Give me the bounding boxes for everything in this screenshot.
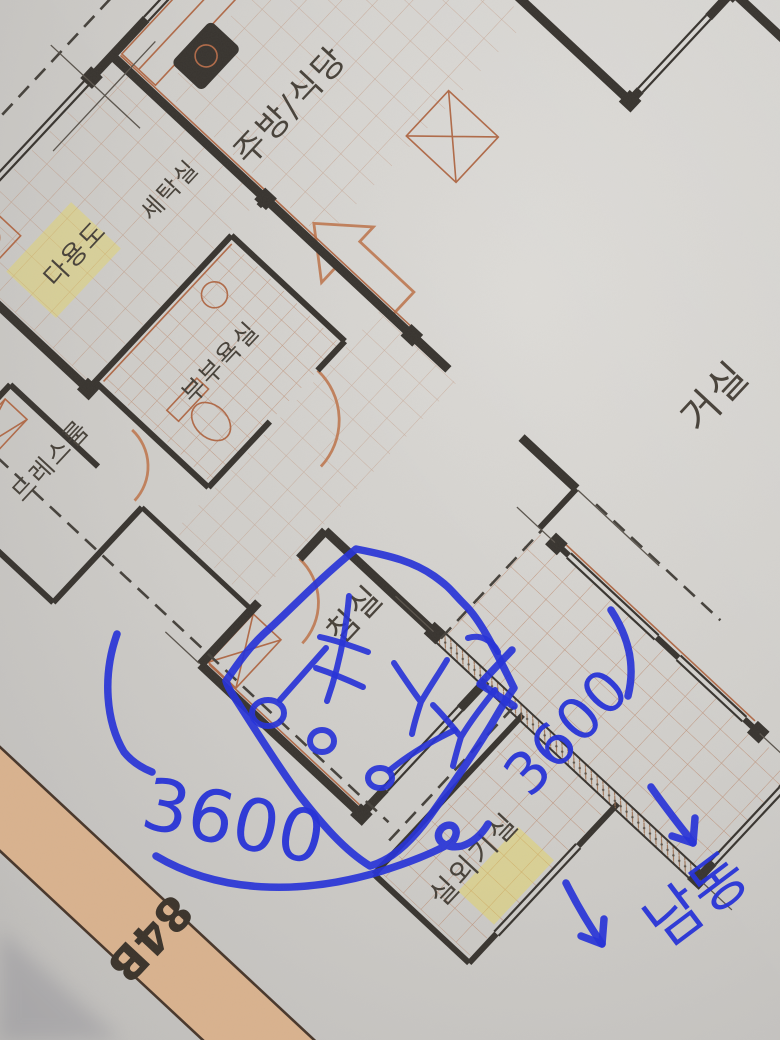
floor-plan-canvas: 84B	[0, 0, 780, 1040]
photo-grain	[0, 0, 780, 1040]
floor-plan-photo: 84B	[0, 0, 780, 1040]
